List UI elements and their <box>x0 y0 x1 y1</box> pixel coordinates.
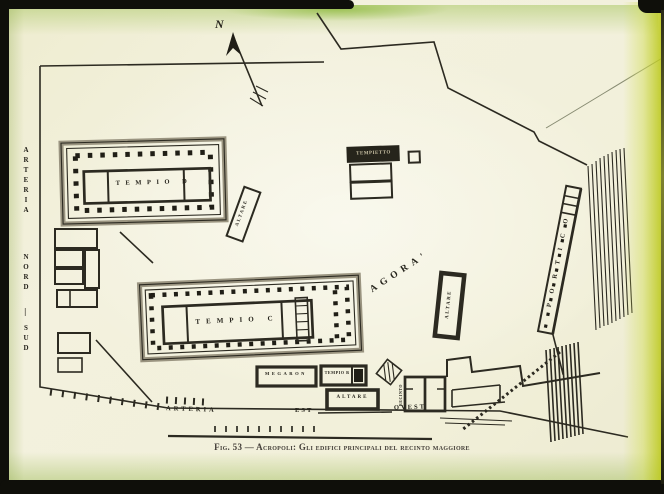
megaron-label: MEGARON <box>258 372 314 377</box>
street-eo-ovest-label: OVEST <box>394 404 426 412</box>
west-rooms <box>55 229 153 402</box>
scanned-figure-page: N ARTERIA NORD — SUD TEMPIO D ALTARE TEM… <box>0 0 664 494</box>
street-ns-dash: — <box>21 308 29 316</box>
page-border-top <box>0 0 354 9</box>
temple-b-label: TEMPIO B <box>322 371 352 375</box>
north-label: N <box>215 18 224 30</box>
figure-caption: Fig. 53 — Acropoli: Gli edifici principa… <box>112 443 572 452</box>
street-ns-name-label: ARTERIA <box>22 146 29 216</box>
street-eo-est-label: EST <box>295 408 313 415</box>
altar-south-label: ALTARE <box>329 395 376 400</box>
east-scarp-hatching <box>546 148 632 442</box>
page-border-bottom <box>0 480 664 494</box>
street-ns-sud-label: SUD <box>22 324 29 354</box>
north-arrow <box>226 32 268 106</box>
page-border-left <box>0 0 9 494</box>
street-ns-nord-label: NORD <box>22 253 29 293</box>
